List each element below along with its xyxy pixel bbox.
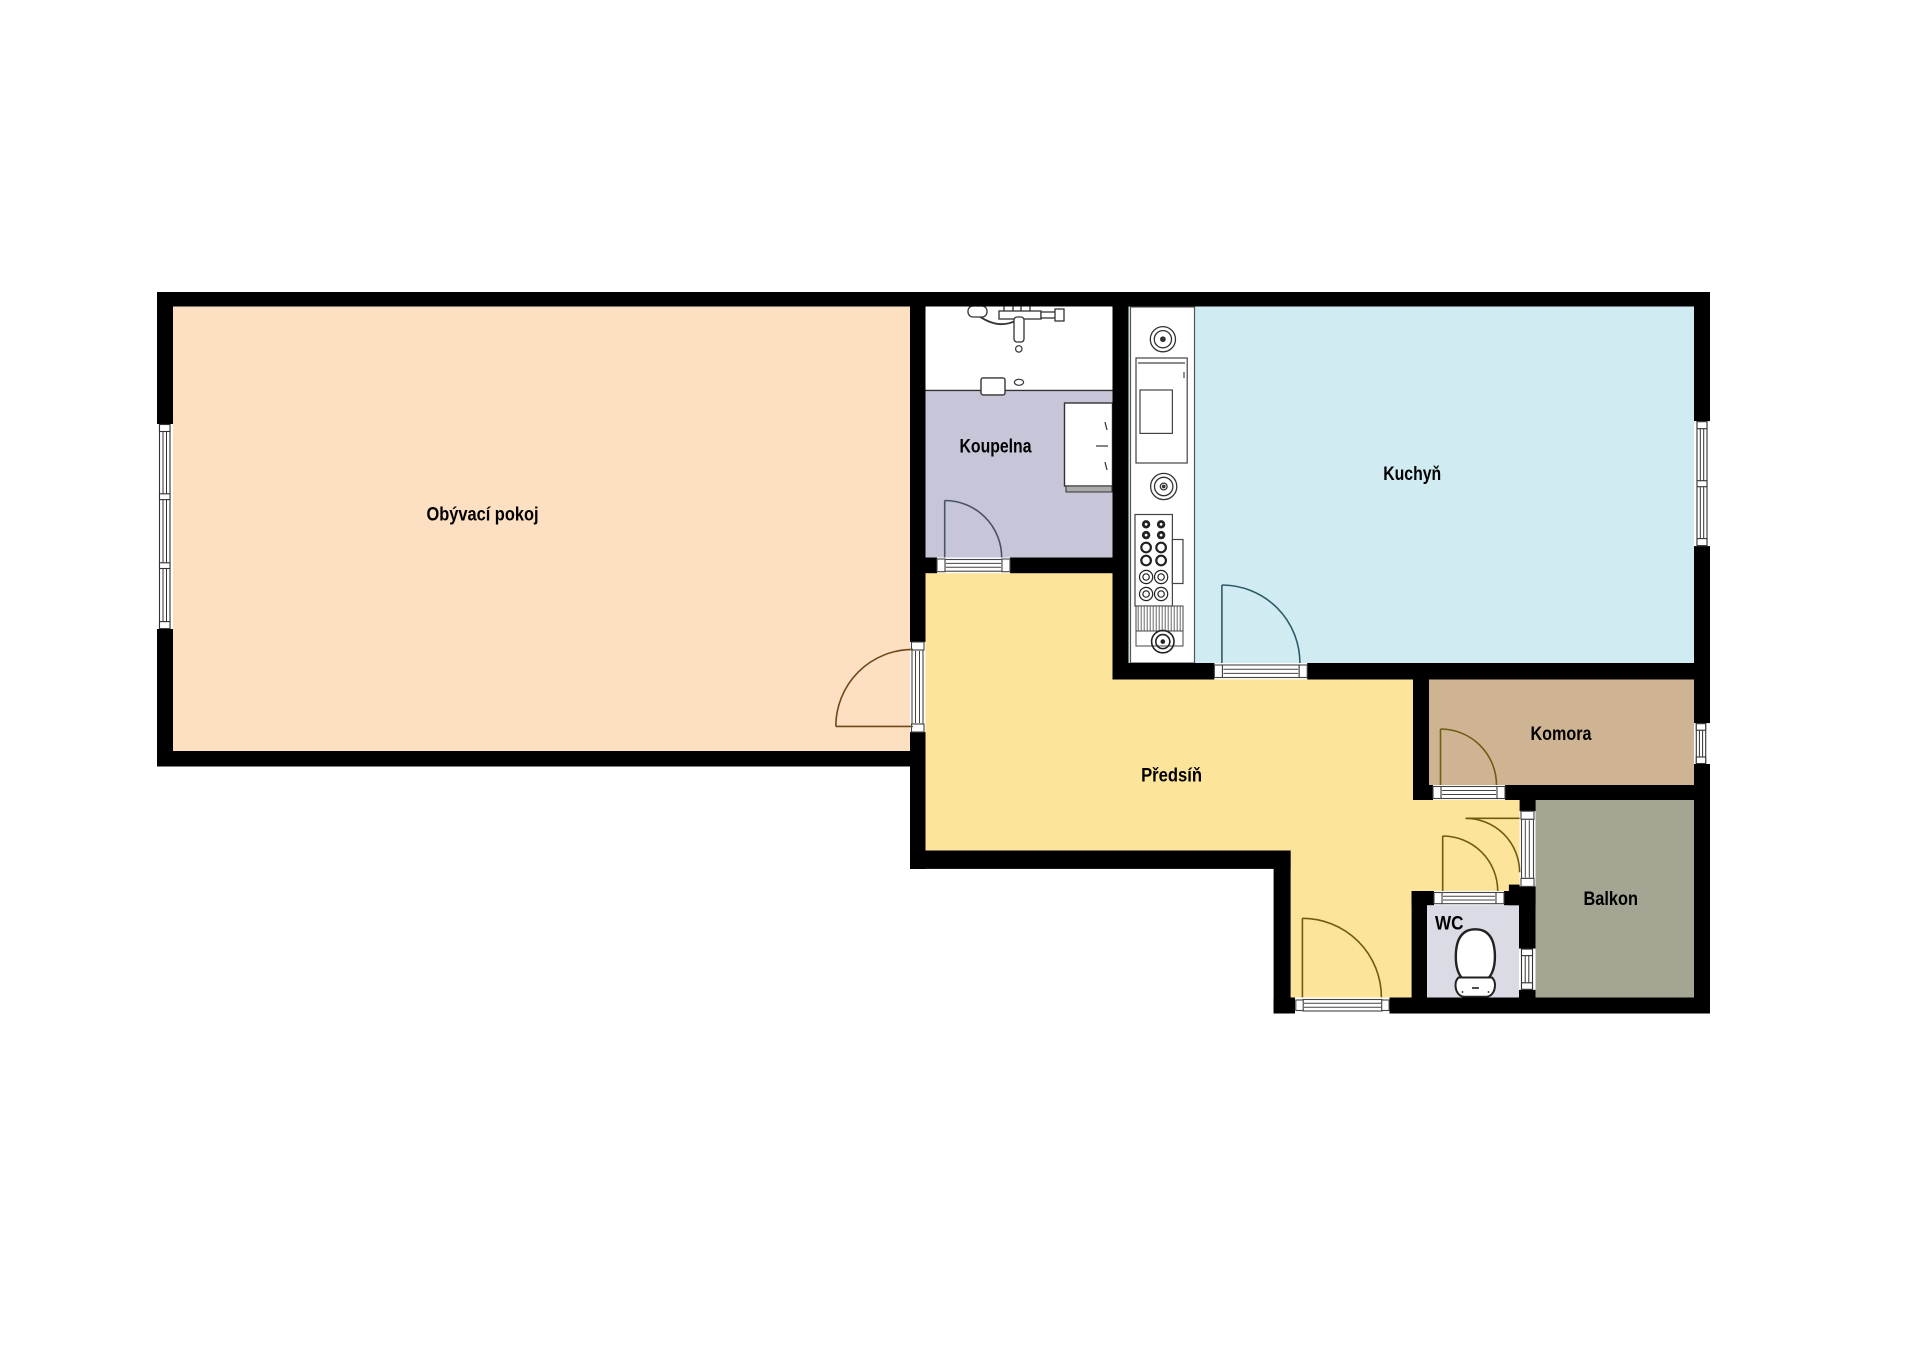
svg-text:Koupelna: Koupelna [960,436,1032,457]
svg-text:Balkon: Balkon [1583,889,1638,910]
svg-text:WC: WC [1435,914,1464,935]
svg-text:Předsíň: Předsíň [1141,765,1202,786]
svg-text:Obývací pokoj: Obývací pokoj [427,505,539,526]
svg-text:Kuchyň: Kuchyň [1383,464,1441,485]
svg-text:Komora: Komora [1531,724,1592,745]
